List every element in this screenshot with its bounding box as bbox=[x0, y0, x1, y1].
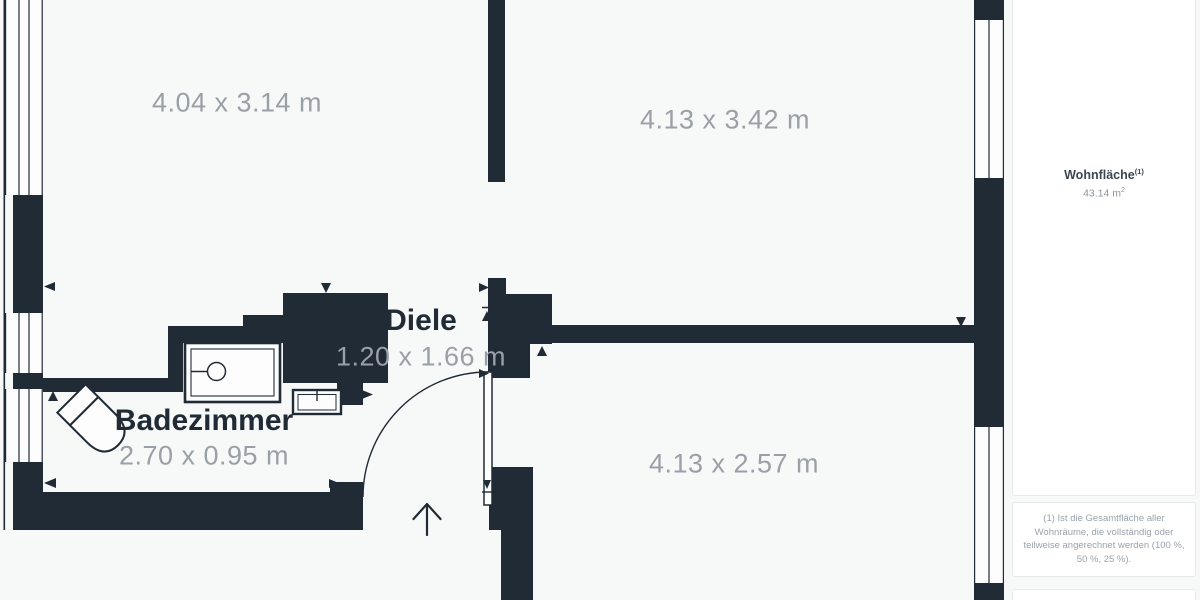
room-dimension-label: 4.04 x 3.14 m bbox=[152, 88, 322, 119]
room-name-label: Diele bbox=[385, 304, 457, 338]
room-dimension-label: 4.13 x 2.57 m bbox=[649, 449, 819, 480]
lower-wall-column bbox=[501, 530, 533, 600]
dimension-arrow-icon bbox=[44, 478, 56, 488]
footnote-text: (1) Ist die Gesamtfläche aller Wohnräume… bbox=[1018, 512, 1190, 566]
dimension-arrow-icon bbox=[479, 283, 489, 292]
dimension-arrow-icon bbox=[48, 391, 58, 401]
sidebar: Wohnfläche(1) 43.14 m2 (1) Ist die Gesam… bbox=[1008, 0, 1200, 600]
sink-back-wall bbox=[168, 326, 248, 343]
left-extension-line bbox=[4, 0, 6, 530]
entrance-arrow-icon bbox=[414, 504, 441, 535]
middle-horizontal-wall bbox=[530, 325, 1004, 343]
room-dimension-label: 2.70 x 0.95 m bbox=[119, 441, 289, 472]
entrance-door bbox=[363, 372, 492, 505]
right-wall-segment bbox=[974, 0, 1004, 20]
living-area-title: Wohnfläche(1) bbox=[1013, 167, 1195, 182]
dimension-arrow-icon bbox=[321, 283, 331, 293]
floor-plan: 4.04 x 3.14 m 4.13 x 3.42 m Diele 1.20 x… bbox=[0, 0, 1010, 600]
partial-card bbox=[1012, 589, 1196, 600]
living-area-card: Wohnfläche(1) 43.14 m2 bbox=[1012, 0, 1196, 496]
lower-wall-chunk bbox=[489, 467, 533, 530]
room-name-label: Badezimmer bbox=[115, 404, 293, 438]
bottom-wall bbox=[13, 492, 363, 530]
door-swing-arc bbox=[363, 372, 488, 497]
left-wall-junction bbox=[13, 373, 43, 389]
window bbox=[974, 20, 1004, 178]
diele-wall-stub bbox=[488, 278, 506, 296]
room-dimension-label: 4.13 x 3.42 m bbox=[640, 105, 810, 136]
window bbox=[5, 0, 43, 195]
sink-back-wall-step bbox=[243, 315, 288, 343]
bathroom-north-wall bbox=[40, 378, 168, 392]
sink-fixture bbox=[185, 343, 280, 402]
footnote-card: (1) Ist die Gesamtfläche aller Wohnräume… bbox=[1012, 502, 1196, 577]
living-area-value: 43.14 m2 bbox=[1013, 187, 1195, 200]
room-dimension-label: 1.20 x 1.66 m bbox=[336, 342, 506, 373]
top-divider-wall bbox=[488, 0, 505, 182]
window bbox=[5, 389, 43, 462]
window bbox=[5, 313, 43, 373]
washer-fixture bbox=[293, 390, 341, 414]
bottom-wall-chunk bbox=[330, 482, 363, 530]
dimension-arrow-icon bbox=[362, 390, 373, 399]
window bbox=[974, 427, 1004, 583]
floorplan-viewer: 4.04 x 3.14 m 4.13 x 3.42 m Diele 1.20 x… bbox=[0, 0, 1200, 600]
left-wall-segment bbox=[13, 195, 43, 313]
dimension-arrow-icon bbox=[537, 346, 547, 356]
right-wall-segment bbox=[974, 178, 1004, 427]
dimension-arrow-icon bbox=[44, 282, 55, 291]
right-wall-segment bbox=[974, 583, 1004, 600]
